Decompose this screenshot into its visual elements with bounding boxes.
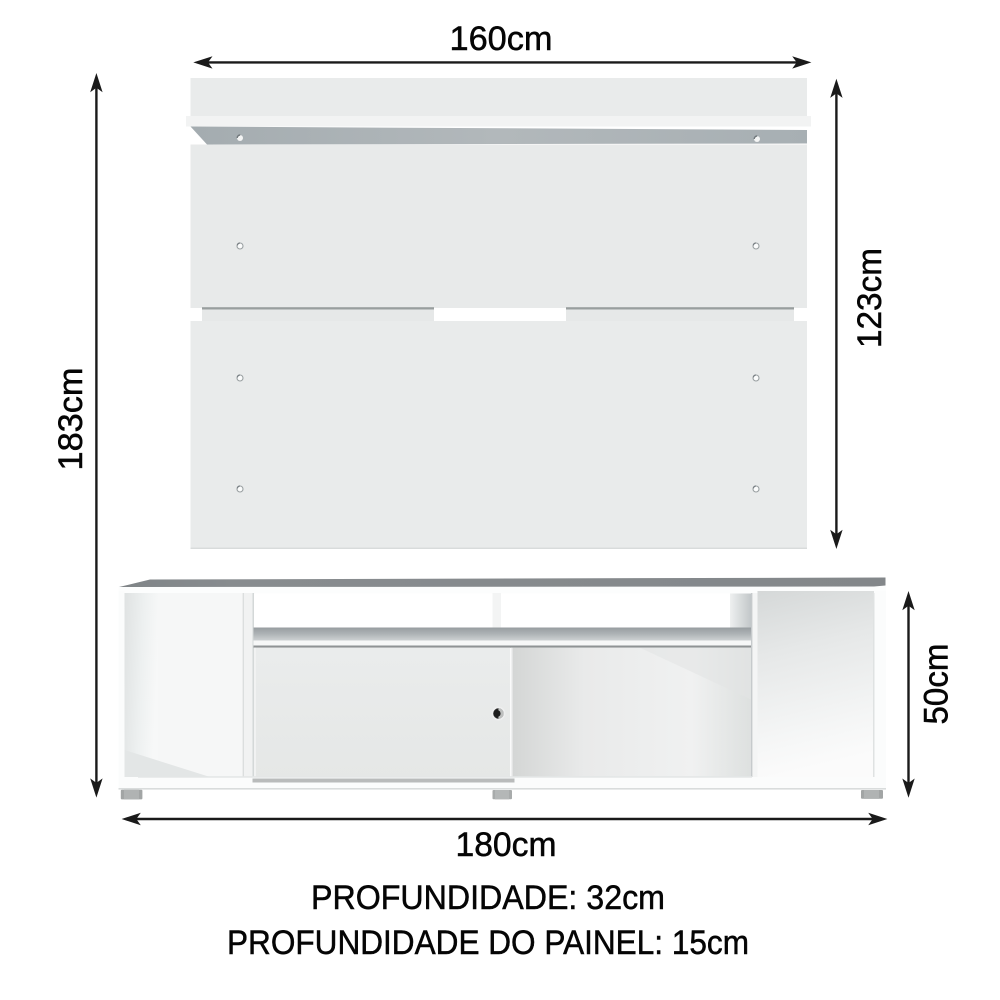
svg-text:PROFUNDIDADE: 32cm: PROFUNDIDADE: 32cm (311, 879, 665, 917)
svg-text:PROFUNDIDADE DO PAINEL: 15cm: PROFUNDIDADE DO PAINEL: 15cm (227, 924, 749, 962)
svg-text:160cm: 160cm (450, 20, 553, 58)
svg-text:123cm: 123cm (851, 248, 889, 348)
svg-text:183cm: 183cm (52, 368, 90, 471)
svg-text:50cm: 50cm (918, 644, 956, 725)
svg-text:180cm: 180cm (456, 826, 557, 864)
